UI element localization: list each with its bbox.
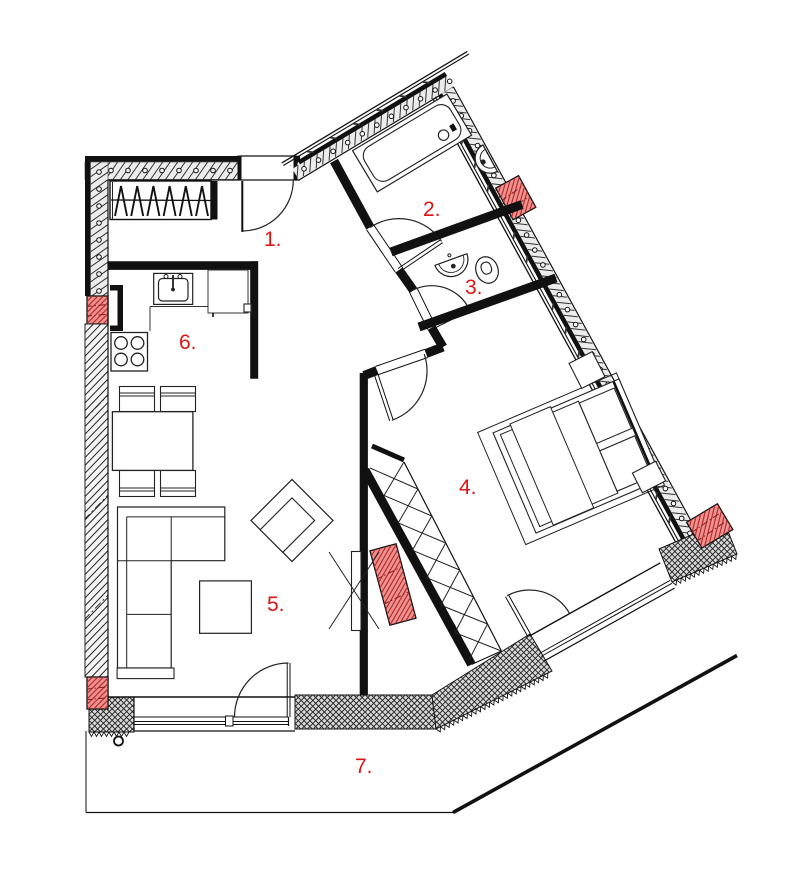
svg-text:4.: 4.: [459, 476, 477, 499]
svg-text:1.: 1.: [264, 228, 282, 251]
svg-text:2.: 2.: [423, 198, 441, 221]
svg-text:7.: 7.: [355, 755, 373, 778]
svg-text:5.: 5.: [267, 593, 285, 616]
svg-text:6.: 6.: [179, 331, 197, 354]
svg-text:3.: 3.: [465, 276, 483, 299]
